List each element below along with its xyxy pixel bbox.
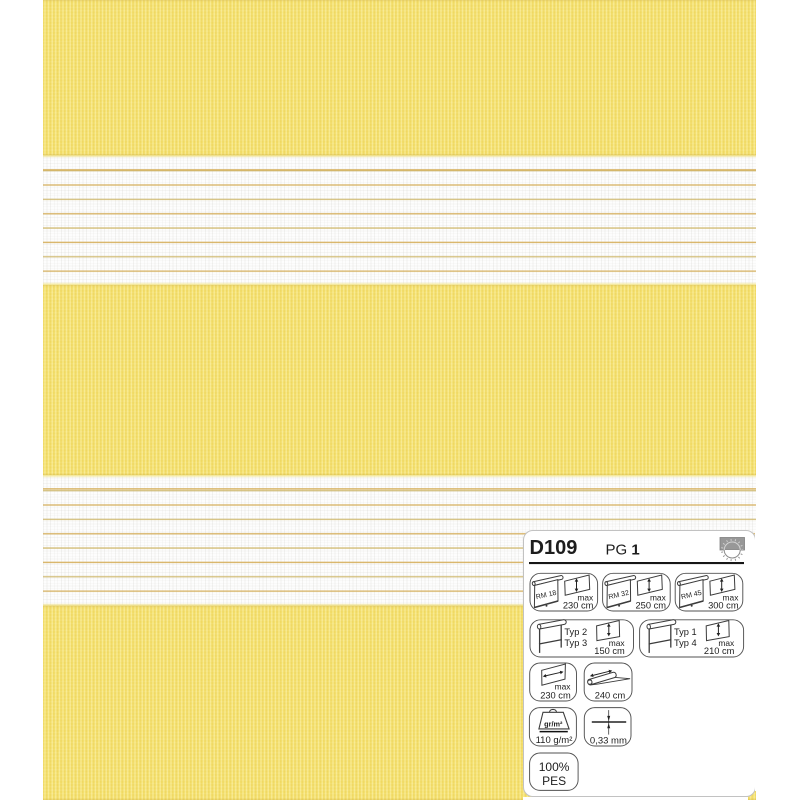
svg-text:230 cm: 230 cm bbox=[540, 690, 571, 700]
svg-text:Typ 1: Typ 1 bbox=[674, 627, 697, 637]
svg-text:100%: 100% bbox=[538, 760, 569, 774]
svg-text:PG 1: PG 1 bbox=[605, 541, 639, 558]
svg-text:PES: PES bbox=[542, 774, 566, 788]
svg-text:gr/m²: gr/m² bbox=[544, 719, 563, 728]
svg-text:110 g/m²: 110 g/m² bbox=[535, 735, 572, 746]
svg-text:Typ 4: Typ 4 bbox=[674, 638, 697, 648]
svg-text:0,33 mm: 0,33 mm bbox=[589, 735, 626, 746]
svg-text:150 cm: 150 cm bbox=[594, 645, 625, 655]
svg-text:Typ 3: Typ 3 bbox=[564, 638, 587, 648]
svg-text:230 cm: 230 cm bbox=[562, 600, 593, 610]
svg-text:250 cm: 250 cm bbox=[635, 600, 666, 610]
svg-text:D109: D109 bbox=[529, 536, 577, 558]
svg-text:210 cm: 210 cm bbox=[703, 645, 734, 655]
svg-text:300 cm: 300 cm bbox=[708, 600, 739, 610]
svg-text:Typ 2: Typ 2 bbox=[564, 627, 587, 637]
svg-text:240 cm: 240 cm bbox=[594, 690, 625, 700]
